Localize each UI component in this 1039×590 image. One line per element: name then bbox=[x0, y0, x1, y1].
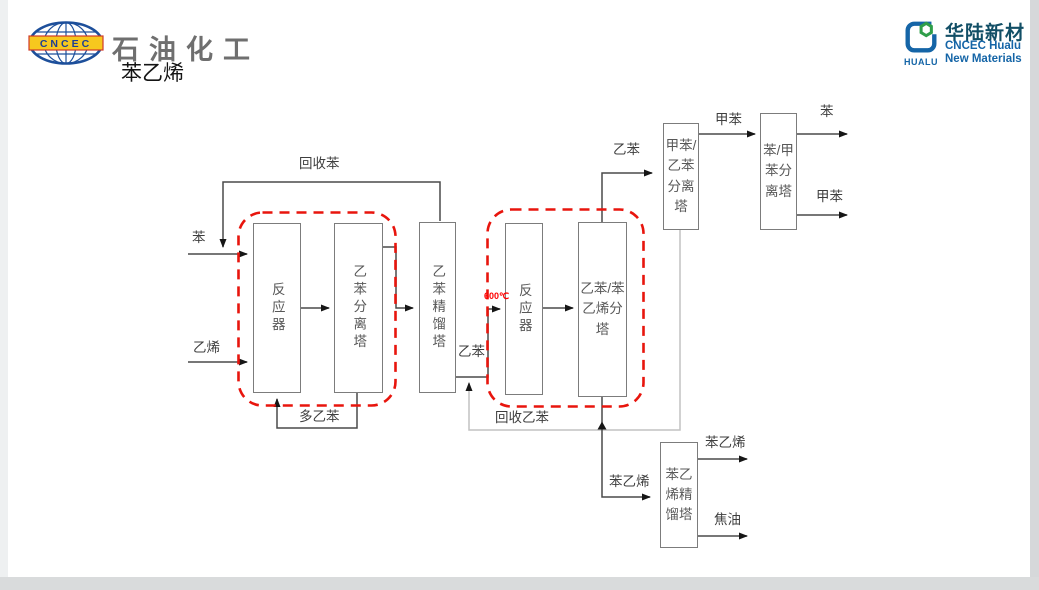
hualu-en-line2: New Materials bbox=[945, 53, 1022, 65]
benzene-toluene-separation-tower-label: 苯/甲 苯分 离塔 bbox=[763, 141, 794, 202]
cncec-band-text: CNCEC bbox=[40, 38, 92, 50]
page-title: 苯乙烯 bbox=[121, 57, 184, 87]
benzene-toluene-separation-tower-box: 苯/甲 苯分 离塔 bbox=[760, 113, 797, 230]
eb-styrene-splitter-label: 乙苯/苯 乙烯分 塔 bbox=[580, 279, 624, 340]
benzene-product-label: 苯 bbox=[820, 105, 834, 119]
junction-arrowhead bbox=[598, 422, 607, 430]
hualu-en-line1: CNCEC Hualu bbox=[945, 40, 1021, 52]
eb-overhead-label: 乙苯 bbox=[613, 143, 640, 157]
ethylene-feed-label: 乙烯 bbox=[193, 341, 220, 355]
reactor-1-label: 反应器 bbox=[270, 282, 284, 335]
eb-junction-label: 乙苯 bbox=[458, 345, 485, 359]
eb-distillation-tower-label: 乙苯精馏塔 bbox=[431, 264, 445, 352]
ebsep-to-ebdist-line bbox=[383, 247, 413, 308]
toluene-eb-separation-tower-box: 甲苯/ 乙苯 分离 塔 bbox=[663, 123, 699, 230]
styrene-feed-label: 苯乙烯 bbox=[609, 475, 650, 489]
eb-separation-tower-box: 乙苯分离塔 bbox=[334, 223, 383, 393]
reactor-2-label: 反应器 bbox=[517, 283, 531, 336]
styrene-distillation-tower-box: 苯乙 烯精 馏塔 bbox=[660, 442, 698, 548]
recycle-eb-line bbox=[469, 230, 680, 430]
toluene-mid-label: 甲苯 bbox=[715, 113, 742, 127]
cncec-globe-logo: CNCEC bbox=[28, 21, 104, 65]
right-margin-strip bbox=[1030, 0, 1039, 590]
hualu-vessel-icon bbox=[901, 19, 941, 57]
toluene-eb-separation-tower-label: 甲苯/ 乙苯 分离 塔 bbox=[666, 136, 697, 217]
toluene-product-label: 甲苯 bbox=[816, 190, 843, 204]
left-margin-strip bbox=[0, 0, 8, 590]
eb-distillation-tower-box: 乙苯精馏塔 bbox=[419, 222, 456, 393]
tar-product-label: 焦油 bbox=[714, 513, 741, 527]
bottom-margin-strip bbox=[0, 577, 1039, 590]
eb-separation-tower-label: 乙苯分离塔 bbox=[352, 264, 366, 352]
recycle-eb-label: 回收乙苯 bbox=[495, 411, 549, 425]
reactor2-inlet-temperature-label: 600℃ bbox=[484, 292, 509, 301]
poly-eb-label: 多乙苯 bbox=[299, 410, 340, 424]
reactor-1-box: 反应器 bbox=[253, 223, 301, 393]
styrene-distillation-tower-label: 苯乙 烯精 馏塔 bbox=[666, 465, 693, 526]
hualu-icon-caption: HUALU bbox=[899, 57, 943, 67]
reactor-2-box: 反应器 bbox=[505, 223, 543, 395]
hexagon-icon bbox=[921, 23, 931, 35]
benzene-feed-label: 苯 bbox=[192, 231, 206, 245]
eb-styrene-splitter-box: 乙苯/苯 乙烯分 塔 bbox=[578, 222, 627, 397]
hualu-logo: HUALU 华陆新材 CNCEC Hualu New Materials bbox=[899, 17, 1029, 69]
slide: 反应器 乙苯分离塔 乙苯精馏塔 反应器 乙苯/苯 乙烯分 塔 甲苯/ 乙苯 分离… bbox=[0, 0, 1039, 590]
recycle-benzene-label: 回收苯 bbox=[299, 157, 340, 171]
ebsm-overhead-line bbox=[602, 173, 652, 222]
styrene-product-label: 苯乙烯 bbox=[705, 436, 746, 450]
eb-to-reactor2-line bbox=[456, 309, 500, 377]
